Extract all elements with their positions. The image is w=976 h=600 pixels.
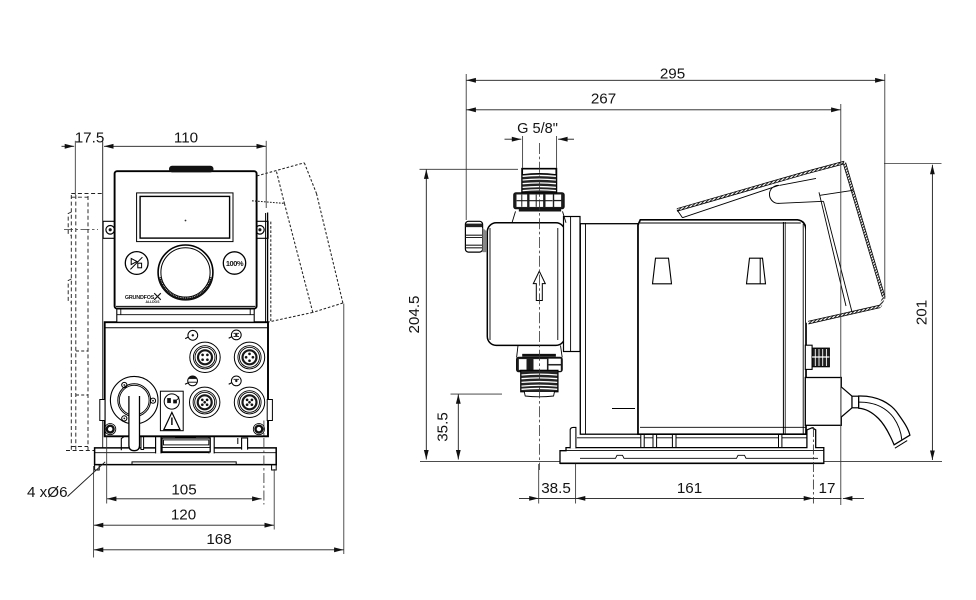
svg-text:120: 120 (171, 507, 196, 524)
svg-text:161: 161 (677, 480, 702, 497)
svg-text:110: 110 (174, 130, 198, 147)
svg-text:295: 295 (660, 65, 685, 82)
svg-text:35.5: 35.5 (435, 412, 452, 442)
svg-text:105: 105 (171, 481, 196, 498)
svg-text:204.5: 204.5 (406, 295, 423, 333)
svg-text:100%: 100% (226, 259, 244, 268)
svg-text:201: 201 (914, 300, 931, 325)
svg-text:G 5/8": G 5/8" (517, 121, 558, 137)
svg-text:17: 17 (819, 480, 836, 497)
svg-text:38.5: 38.5 (541, 480, 571, 497)
svg-text:267: 267 (591, 91, 616, 108)
svg-text:17.5: 17.5 (75, 130, 105, 147)
svg-text:168: 168 (206, 531, 231, 548)
svg-text:4 xØ6: 4 xØ6 (27, 484, 68, 501)
svg-text:ALLDOS: ALLDOS (146, 300, 161, 304)
